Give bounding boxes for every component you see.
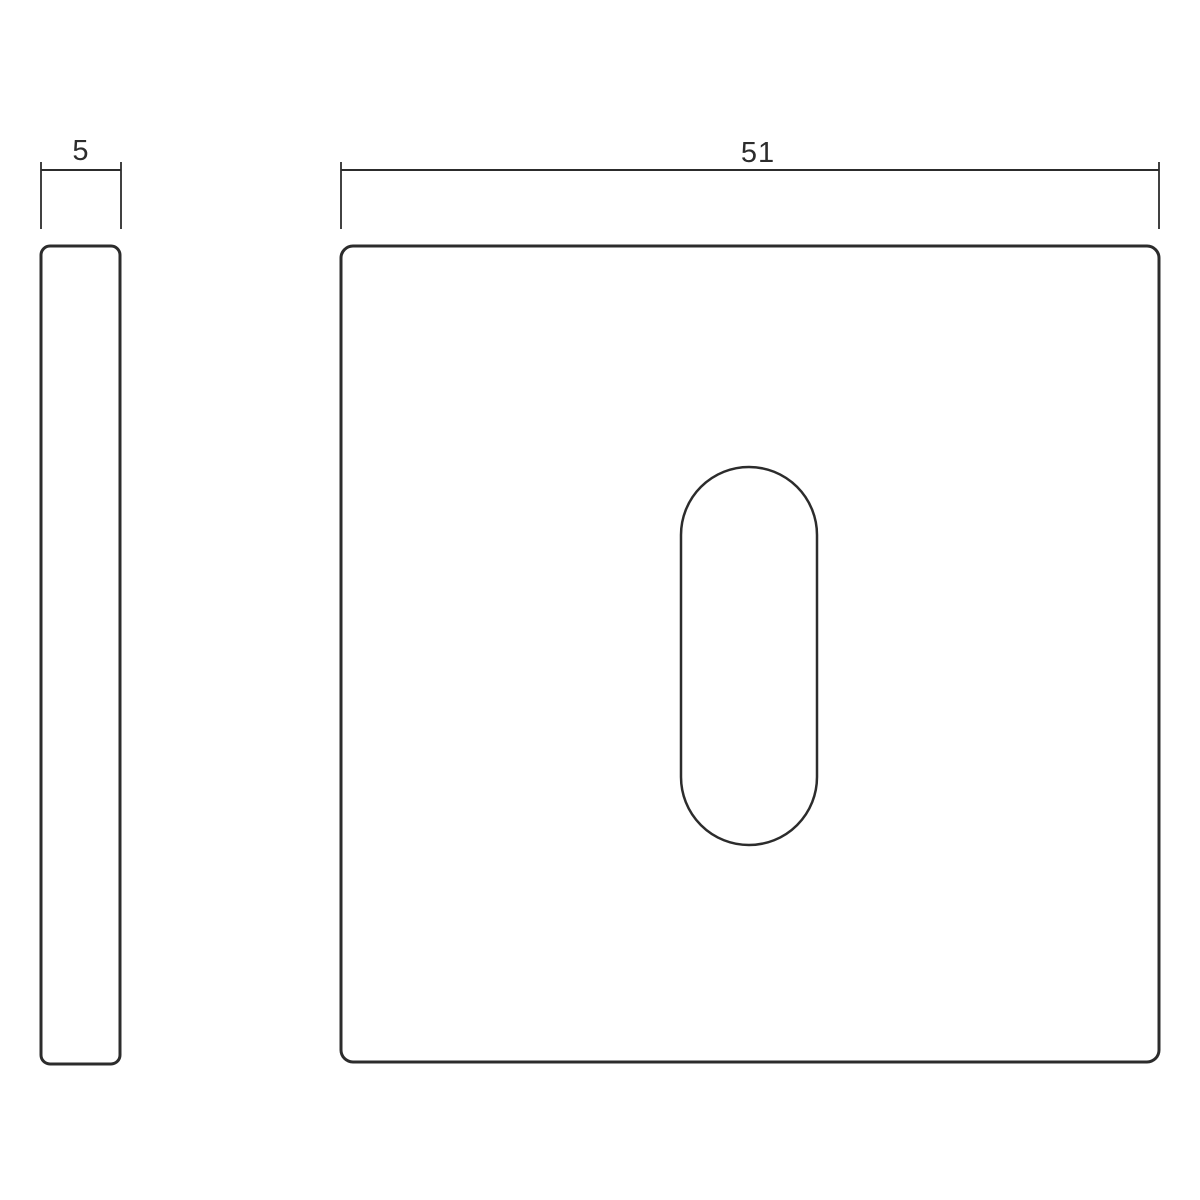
front-view-square-outline bbox=[341, 246, 1159, 1062]
side-view: 5 bbox=[41, 135, 121, 1064]
dimension-front-width: 51 bbox=[341, 137, 1159, 229]
dimension-label-side-thickness: 5 bbox=[72, 135, 89, 167]
technical-drawing-canvas: 5 51 bbox=[0, 0, 1200, 1200]
side-view-plate-outline bbox=[41, 246, 120, 1064]
front-view: 51 bbox=[341, 137, 1159, 1062]
dimension-label-front-width: 51 bbox=[741, 137, 775, 169]
keyhole-cutout bbox=[681, 467, 817, 845]
technical-drawing-page: 5 51 bbox=[0, 0, 1200, 1200]
dimension-side-thickness: 5 bbox=[41, 135, 121, 229]
